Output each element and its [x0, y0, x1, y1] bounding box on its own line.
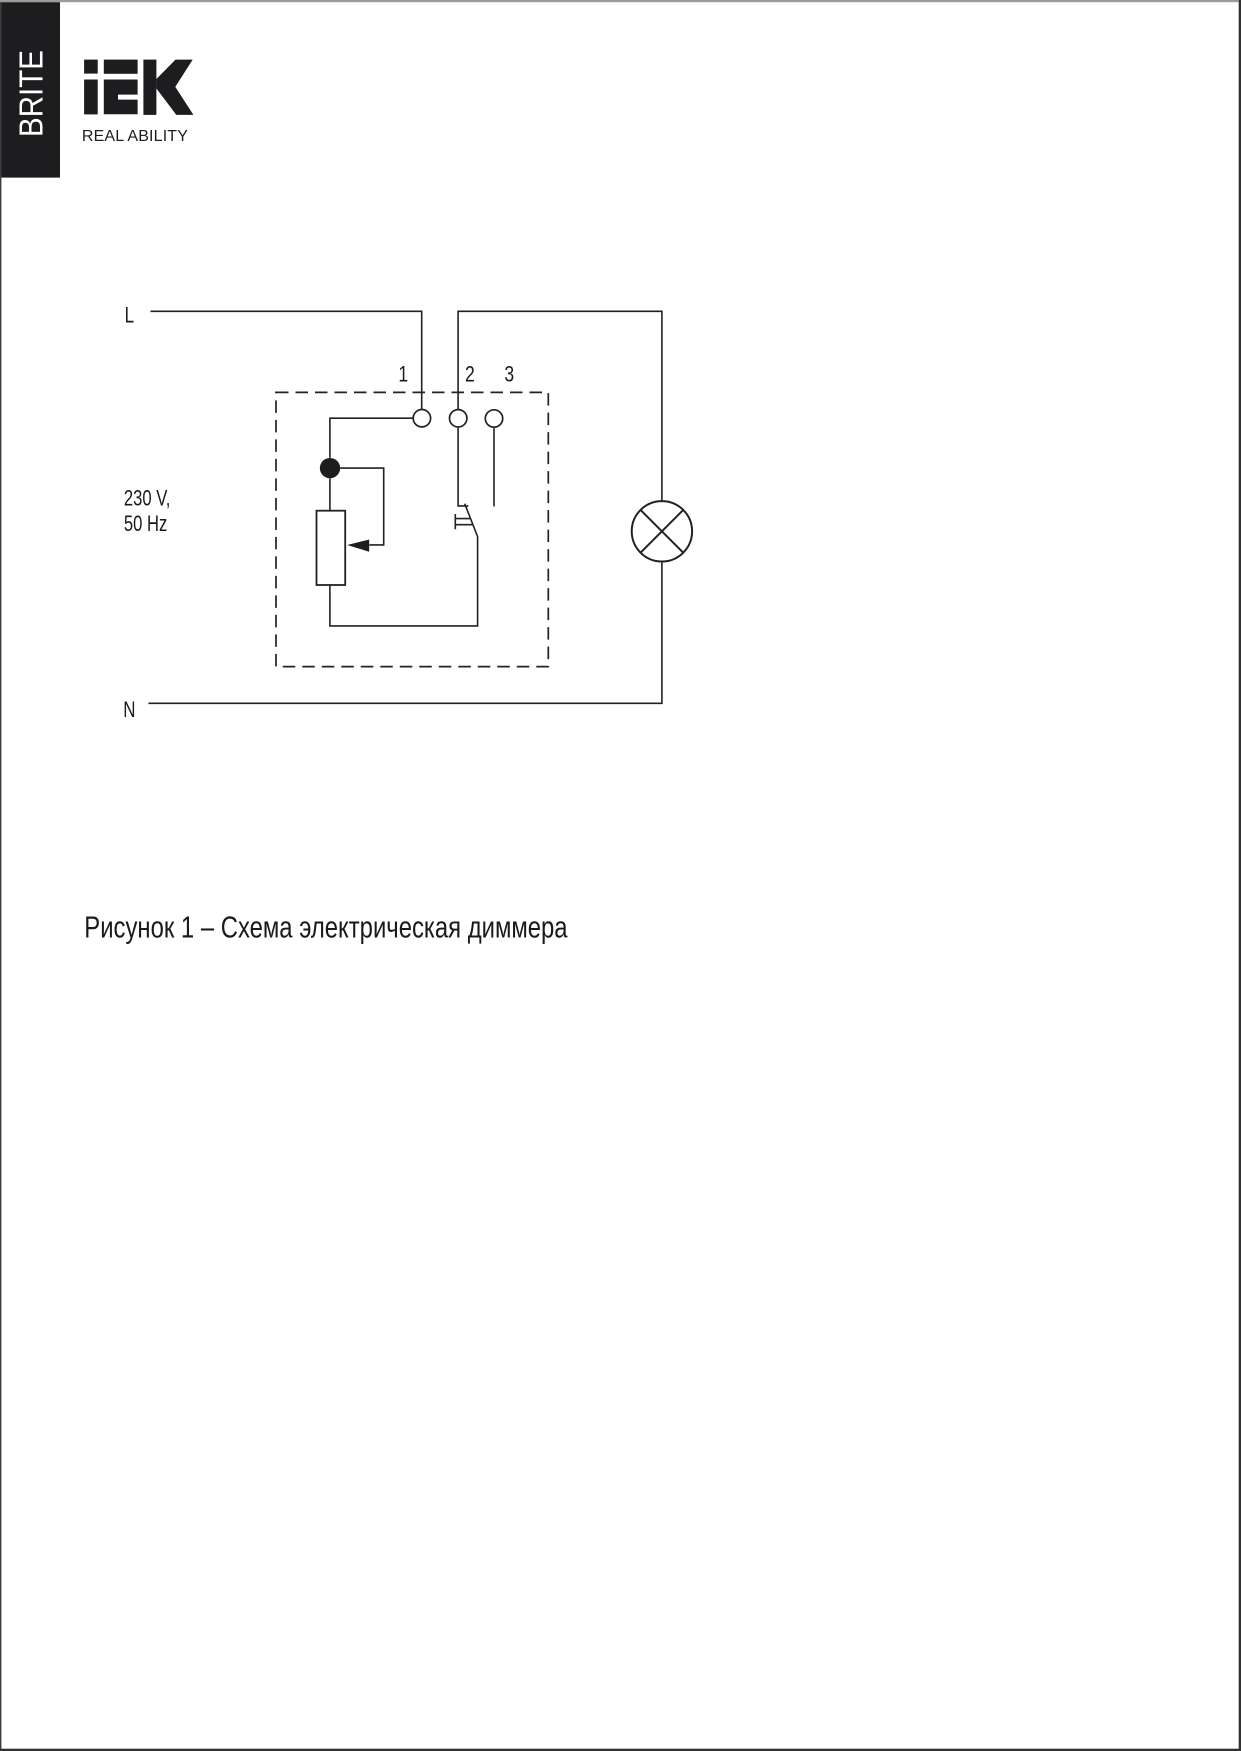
svg-text:L: L: [125, 304, 134, 329]
svg-text:2: 2: [465, 363, 475, 387]
svg-text:Рисунок 1 – Схема электрическа: Рисунок 1 – Схема электрическая диммера: [84, 910, 568, 945]
svg-text:50 Hz: 50 Hz: [124, 512, 167, 537]
svg-text:230 V,: 230 V,: [124, 486, 170, 511]
svg-text:REAL ABILITY: REAL ABILITY: [82, 128, 188, 145]
svg-text:N: N: [123, 698, 135, 723]
svg-text:3: 3: [504, 363, 514, 387]
svg-text:1: 1: [398, 363, 408, 387]
svg-text:BRITE: BRITE: [13, 50, 50, 137]
